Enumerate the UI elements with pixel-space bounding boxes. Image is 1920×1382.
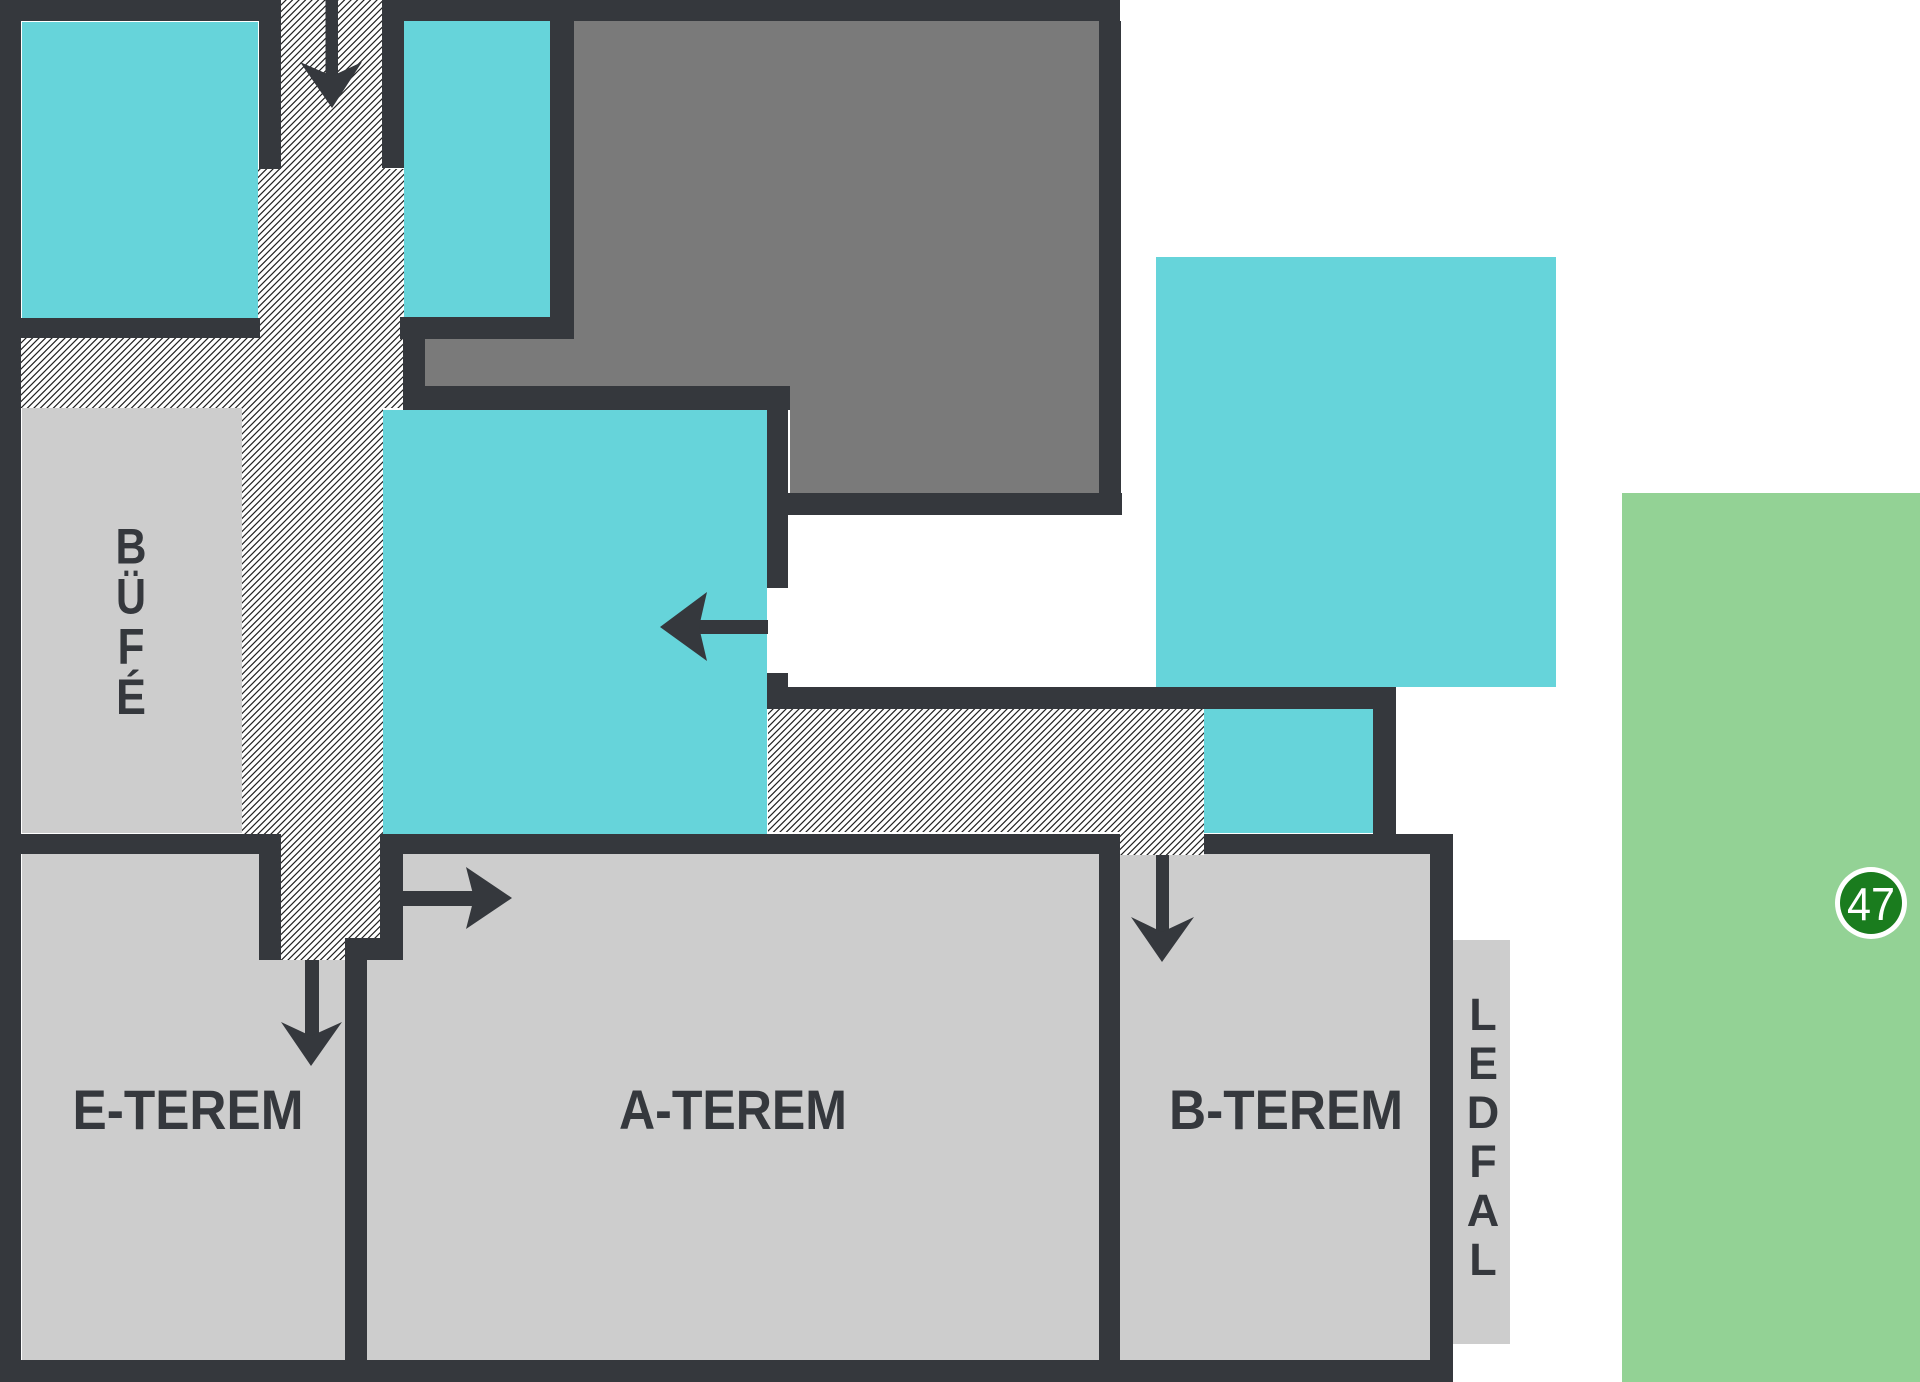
svg-text:B-TEREM: B-TEREM [1169,1078,1403,1141]
svg-text:A: A [1467,1185,1500,1236]
svg-text:L: L [1469,1234,1497,1285]
svg-text:É: É [116,669,146,725]
svg-text:47: 47 [1847,878,1895,930]
svg-text:F: F [1469,1136,1497,1187]
svg-text:Ü: Ü [116,569,146,625]
svg-text:F: F [118,619,145,675]
svg-text:E: E [1468,1038,1498,1089]
svg-text:L: L [1469,989,1497,1040]
svg-text:E-TEREM: E-TEREM [73,1078,304,1141]
svg-text:D: D [1467,1087,1500,1138]
svg-text:A-TEREM: A-TEREM [619,1078,847,1141]
svg-text:B: B [116,519,147,575]
